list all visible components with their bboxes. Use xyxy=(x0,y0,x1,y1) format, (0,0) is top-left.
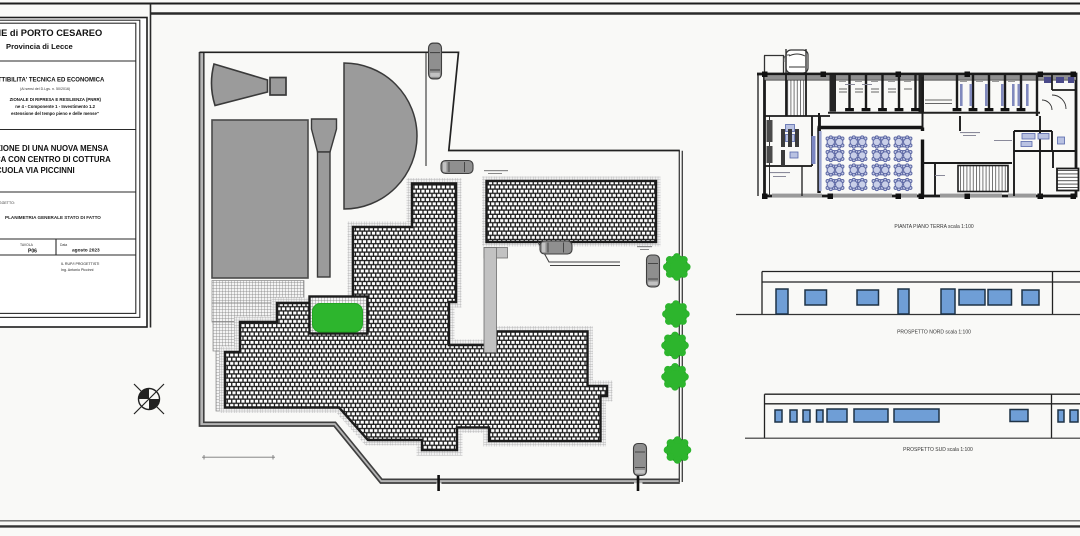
svg-text:IL RUP/I PROGETTISTI: IL RUP/I PROGETTISTI xyxy=(61,262,99,266)
svg-text:P06: P06 xyxy=(28,249,37,255)
svg-text:TAVOLA: TAVOLA xyxy=(20,243,34,247)
svg-text:estensione del tempo pieno e d: estensione del tempo pieno e delle mense… xyxy=(11,111,99,116)
svg-text:Provincia di Lecce: Provincia di Lecce xyxy=(6,42,73,51)
svg-text:DI FATTIBILITA' TECNICA ED ECO: DI FATTIBILITA' TECNICA ED ECONOMICA xyxy=(0,78,105,84)
svg-text:(Ai sensi del D.Lgs. n. 50/20: (Ai sensi del D.Lgs. n. 50/2016) xyxy=(20,87,70,91)
svg-text:ZIONE DI UNA NUOVA MENSA: ZIONE DI UNA NUOVA MENSA xyxy=(0,144,109,153)
svg-text:ZIONALE DI RIPRESA E RESILIENZ: ZIONALE DI RIPRESA E RESILIENZA (PNRR) xyxy=(10,97,102,102)
svg-text:Ing. Antonio Piccinni: Ing. Antonio Piccinni xyxy=(61,268,94,272)
svg-text:ne 4 - Componente 1 - Investim: ne 4 - Componente 1 - Investimento 1.2 xyxy=(15,104,95,109)
svg-text:agosto 2023: agosto 2023 xyxy=(72,248,100,254)
svg-text:PROSPETTO SUD scala 1:100: PROSPETTO SUD scala 1:100 xyxy=(903,447,973,453)
svg-text:PLANIMETRIA GENERALE STATO DI: PLANIMETRIA GENERALE STATO DI FATTO xyxy=(5,215,101,220)
svg-text:CA CON CENTRO DI COTTURA: CA CON CENTRO DI COTTURA xyxy=(0,155,111,164)
svg-text:COMUNE di PORTO CESAREO: COMUNE di PORTO CESAREO xyxy=(0,28,102,38)
svg-text:OGGETTO:: OGGETTO: xyxy=(0,201,15,205)
svg-text:Data: Data xyxy=(60,243,67,247)
svg-text:PROSPETTO NORD scala 1:100: PROSPETTO NORD scala 1:100 xyxy=(897,330,971,336)
svg-text:PIANTA PIANO TERRA scala 1:10: PIANTA PIANO TERRA scala 1:100 xyxy=(894,224,974,230)
svg-text:CUOLA VIA PICCINNI: CUOLA VIA PICCINNI xyxy=(0,166,75,175)
